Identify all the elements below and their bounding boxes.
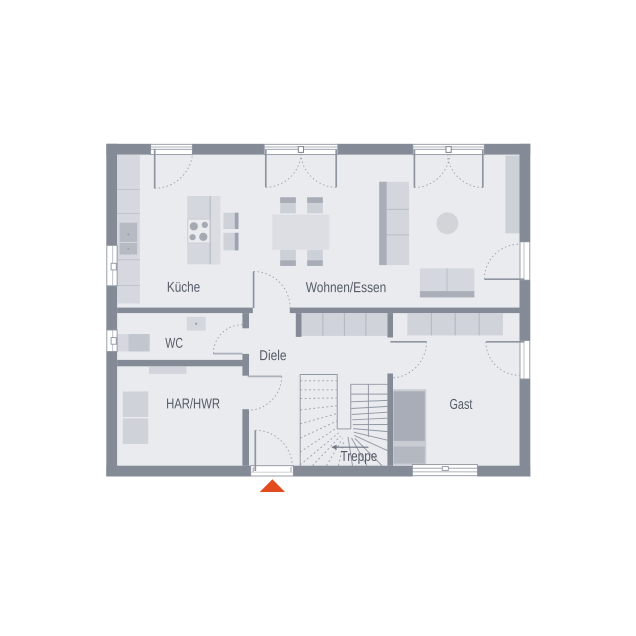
svg-text:Küche: Küche [167, 280, 200, 296]
svg-text:Gast: Gast [449, 397, 472, 413]
svg-text:HAR/HWR: HAR/HWR [166, 396, 220, 412]
svg-text:Diele: Diele [259, 348, 286, 364]
svg-text:Treppe: Treppe [340, 449, 377, 465]
svg-text:WC: WC [165, 336, 183, 352]
svg-text:Wohnen/Essen: Wohnen/Essen [306, 280, 387, 296]
